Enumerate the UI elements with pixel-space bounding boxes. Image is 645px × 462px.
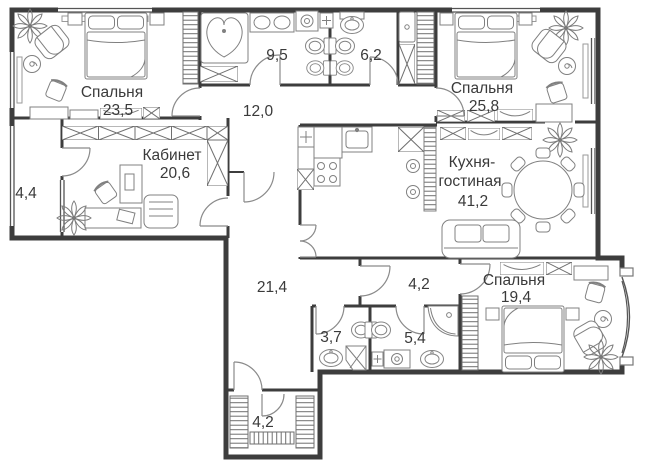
wardrobe-strip xyxy=(462,296,478,370)
kitchen-fixtures xyxy=(297,123,584,258)
hallway-area: 12,0 xyxy=(243,103,274,120)
bay-window-bedroom3 xyxy=(618,268,633,365)
sink-symbol xyxy=(320,350,343,367)
sink xyxy=(254,16,270,29)
closet-shelf-left xyxy=(230,396,248,448)
office-closet xyxy=(207,126,228,140)
stove xyxy=(314,158,340,186)
bathroom1-area: 9,5 xyxy=(266,47,288,64)
bedroom1-area: 23,5 xyxy=(103,102,133,119)
cabinet xyxy=(574,266,608,280)
nightstand xyxy=(68,13,82,25)
kitchen-name-2: гостиная xyxy=(438,173,501,190)
wardrobe-strip xyxy=(183,12,198,84)
office-shelf xyxy=(172,126,208,140)
cabinet xyxy=(399,44,415,84)
toilet-symbol xyxy=(306,38,332,54)
wc2-area: 3,7 xyxy=(320,329,342,346)
kitchen-cabinet xyxy=(298,147,314,169)
bench xyxy=(200,66,238,82)
sideboard xyxy=(440,127,466,140)
kitchen-cabinet xyxy=(297,169,314,190)
bidet-symbol xyxy=(307,61,330,75)
bidet-symbol xyxy=(330,61,353,75)
sink xyxy=(274,16,290,29)
desk-chair xyxy=(93,180,118,205)
cabinet xyxy=(143,107,160,119)
kitchen-sofa xyxy=(442,220,520,258)
door-balcony xyxy=(62,148,90,176)
office-name: Кабинет xyxy=(143,147,202,164)
window-kitchen-right xyxy=(583,148,596,214)
radiator xyxy=(17,57,22,103)
chair-symbol xyxy=(45,78,68,102)
toilet-symbol xyxy=(329,38,355,54)
window-bedroom2-right xyxy=(583,38,596,104)
window-bedroom1-left xyxy=(9,52,22,108)
bar-stool xyxy=(407,186,420,199)
closet-shelf-right xyxy=(296,396,314,448)
radiator xyxy=(583,155,588,207)
bathroom2-area: 5,4 xyxy=(404,330,426,347)
nightstand xyxy=(150,13,164,25)
office-area: 20,6 xyxy=(160,165,190,182)
door-office xyxy=(200,198,228,226)
bar-stool xyxy=(407,160,420,173)
floor-plan: Спальня 23,5 9,5 6,2 Спальня 25,8 12,0 К… xyxy=(0,0,645,462)
corridor-area: 21,4 xyxy=(257,279,288,296)
kitchen-sink-unit xyxy=(342,127,372,152)
bedroom1-furniture xyxy=(13,9,164,119)
office-shelf xyxy=(62,126,99,140)
bar-counter xyxy=(424,127,436,211)
washing-machine xyxy=(384,350,410,368)
dining-table xyxy=(514,161,572,219)
door-hall2 xyxy=(360,266,390,296)
kitchen-name-1: Кухня- xyxy=(449,154,496,171)
sink-symbol xyxy=(421,351,444,368)
cabinet xyxy=(536,104,572,122)
wardrobe-strip xyxy=(417,12,434,84)
sink-symbol xyxy=(341,17,364,34)
window-balcony-left xyxy=(9,126,15,226)
nightstand xyxy=(566,308,579,320)
dining-table-group xyxy=(502,148,584,232)
bedroom2-name: Спальня xyxy=(451,80,513,97)
door-closet-inner xyxy=(262,394,284,416)
nightstand xyxy=(519,13,532,25)
nightstand xyxy=(486,308,499,320)
kitchen-counter xyxy=(314,127,342,158)
dresser xyxy=(30,107,68,119)
tv-console xyxy=(497,109,533,121)
door-closet xyxy=(234,362,262,390)
nightstand xyxy=(440,13,453,25)
bedroom1-name: Спальня xyxy=(81,84,143,101)
bed-symbol xyxy=(502,306,564,372)
sideboard xyxy=(502,127,532,140)
bedroom3-area: 19,4 xyxy=(501,289,532,306)
monitor xyxy=(125,174,134,190)
bed-symbol xyxy=(455,13,517,79)
corner-cabinet xyxy=(346,346,366,370)
hall2-area: 4,2 xyxy=(408,276,430,293)
closet-shelf-bottom xyxy=(250,432,294,444)
bedroom3-name: Спальня xyxy=(483,272,545,289)
office-sofa xyxy=(144,195,178,228)
door-corridor xyxy=(244,172,274,202)
door-kitchen-double xyxy=(300,225,316,257)
closet-area: 4,2 xyxy=(252,414,274,431)
bedroom2-furniture xyxy=(437,11,583,122)
dresser xyxy=(70,110,98,119)
office-shelf xyxy=(135,126,172,140)
bed-symbol xyxy=(85,13,147,79)
kitchen-area: 41,2 xyxy=(458,193,488,210)
radiator xyxy=(583,44,588,98)
balcony-area: 4,4 xyxy=(15,185,37,202)
chair-symbol xyxy=(585,281,606,304)
office-closet xyxy=(207,140,228,186)
toilet-symbol xyxy=(365,322,391,338)
side-table-symbol xyxy=(559,58,576,75)
fridge xyxy=(398,127,424,152)
bedroom2-area: 25,8 xyxy=(469,98,499,115)
office-shelf xyxy=(99,126,136,140)
wc1-area: 6,2 xyxy=(360,47,382,64)
dresser xyxy=(546,262,572,275)
side-table-symbol xyxy=(24,56,41,73)
chair-symbol xyxy=(546,81,568,104)
tv-console xyxy=(468,128,500,140)
shower-corner xyxy=(428,306,458,336)
floor-plan-page: Спальня 23,5 9,5 6,2 Спальня 25,8 12,0 К… xyxy=(0,0,645,462)
door-bedroom1 xyxy=(172,88,200,116)
